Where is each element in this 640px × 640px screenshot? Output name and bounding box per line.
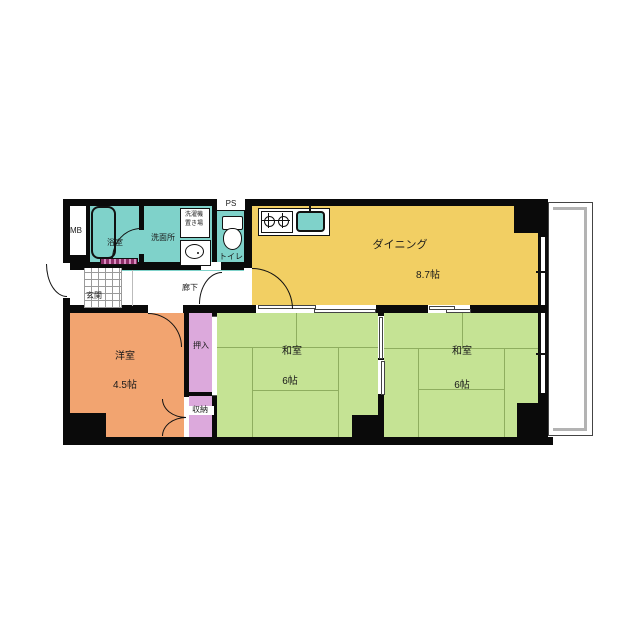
western-room-label: 洋室 bbox=[100, 351, 150, 362]
tatami-line bbox=[338, 347, 339, 437]
japanese-room-1-size-label: 6帖 bbox=[265, 376, 315, 387]
entrance-tile-floor bbox=[84, 268, 121, 308]
entrance-step-line bbox=[121, 268, 122, 308]
japanese-room-2-size-label: 6帖 bbox=[437, 380, 487, 391]
dining-door-opening bbox=[244, 268, 252, 305]
tatami-line bbox=[504, 348, 505, 437]
laundry-label-line2: 置き場 bbox=[181, 221, 207, 228]
wall bbox=[186, 392, 214, 396]
door-arc-entrance bbox=[46, 264, 67, 297]
tatami-line bbox=[252, 390, 338, 391]
sliding-door-leaf bbox=[381, 361, 385, 395]
closet-column-floor bbox=[187, 308, 215, 439]
tatami-line bbox=[296, 313, 297, 347]
burner-icon bbox=[275, 220, 290, 221]
japanese-room-1-label: 和室 bbox=[267, 346, 317, 357]
wall bbox=[86, 202, 90, 258]
sink-drain bbox=[197, 252, 199, 254]
storage-label: 収納 bbox=[186, 406, 214, 415]
sliding-door-leaf bbox=[314, 309, 376, 313]
balcony-rail bbox=[553, 207, 587, 210]
wall-pillar bbox=[517, 403, 548, 438]
entrance-label: 玄関 bbox=[80, 292, 108, 301]
burner-icon bbox=[264, 216, 275, 227]
sliding-door-leaf bbox=[379, 317, 383, 359]
kitchen-sink bbox=[296, 211, 325, 232]
western-room-size-label: 4.5帖 bbox=[100, 380, 150, 391]
toilet-label: トイレ bbox=[214, 253, 248, 262]
bath-label: 浴室 bbox=[95, 239, 135, 248]
closet-label: 押入 bbox=[189, 342, 213, 351]
closet-fusuma bbox=[212, 316, 217, 396]
dining-label: ダイニング bbox=[368, 239, 432, 251]
laundry-label-line1: 洗濯機 bbox=[181, 212, 207, 219]
pipe-space-label: PS bbox=[218, 200, 244, 209]
floor-plan: MB PS 浴室 洗面所 洗濯機 置き場 トイレ 玄関 廊下 ダイニング 8.7… bbox=[0, 0, 640, 640]
burner-icon bbox=[261, 220, 276, 221]
faucet-icon bbox=[309, 205, 311, 213]
wall bbox=[63, 199, 70, 445]
balcony-rail bbox=[584, 207, 587, 431]
japanese-room-2-label: 和室 bbox=[437, 346, 487, 357]
sliding-door-leaf bbox=[446, 309, 471, 313]
washroom-label: 洗面所 bbox=[141, 234, 185, 243]
dining-size-label: 8.7帖 bbox=[403, 270, 453, 281]
shoe-cabinet bbox=[100, 258, 138, 265]
entrance-step-line bbox=[132, 270, 133, 306]
tatami-line bbox=[418, 348, 419, 437]
wall bbox=[63, 437, 553, 445]
western-room-door-opening bbox=[148, 305, 183, 313]
balcony-rail bbox=[553, 428, 587, 431]
tatami-line bbox=[462, 313, 463, 348]
wall-pillar bbox=[66, 413, 106, 438]
sink-basin bbox=[185, 244, 204, 259]
wall bbox=[139, 202, 144, 230]
toilet-bowl bbox=[223, 228, 242, 250]
corridor-label: 廊下 bbox=[176, 284, 204, 293]
wall bbox=[63, 199, 545, 206]
wall bbox=[184, 305, 189, 397]
tatami-line bbox=[252, 347, 253, 437]
wall-pillar bbox=[352, 415, 380, 438]
meter-box-label: MB bbox=[66, 227, 86, 236]
burner-icon bbox=[278, 216, 289, 227]
